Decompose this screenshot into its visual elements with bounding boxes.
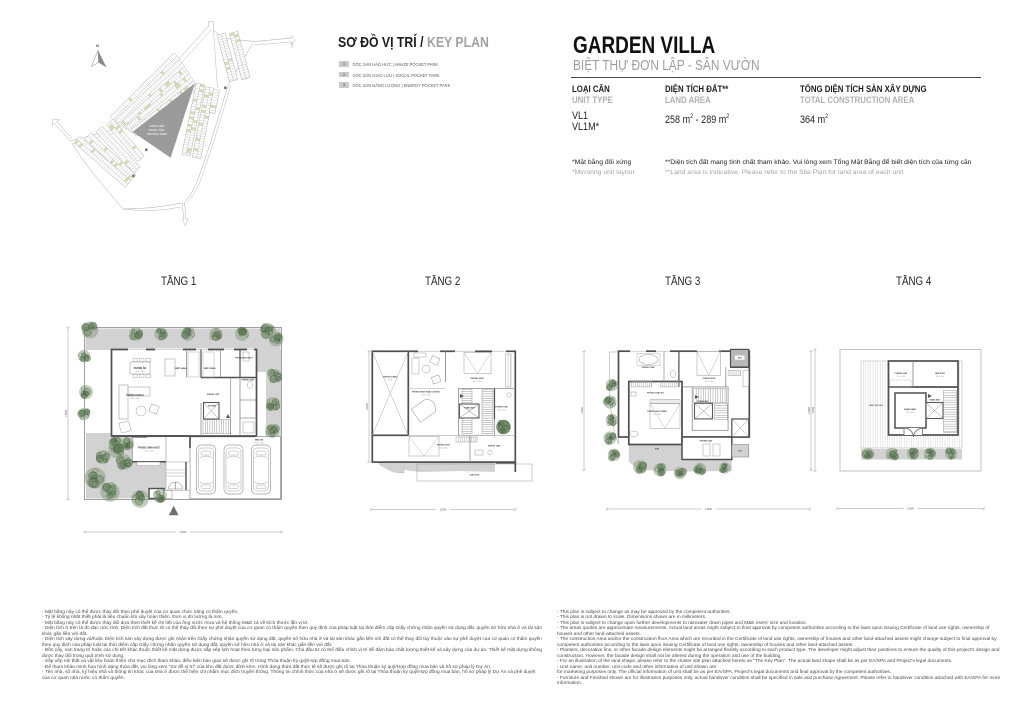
svg-text:N: N (96, 43, 99, 48)
svg-text:5400 x 4000: 5400 x 4000 (144, 451, 153, 453)
svg-text:THANG MÁY: THANG MÁY (929, 399, 941, 402)
svg-text:TRUNG TÂM -: TRUNG TÂM - (148, 128, 166, 132)
svg-text:PHÒNG SINH HOẠT CHUNG: PHÒNG SINH HOẠT CHUNG (412, 391, 440, 394)
svg-text:PHÒNG THAY ĐỒ: PHÒNG THAY ĐỒ (647, 392, 664, 395)
svg-text:PHÒNG ĂN: PHÒNG ĂN (134, 367, 147, 370)
svg-text:PHÒNG GIẶT: PHÒNG GIẶT (700, 440, 713, 443)
svg-text:PHÒNG GIẶT: PHÒNG GIẶT (242, 379, 255, 382)
svg-text:4000 x 3700: 4000 x 3700 (473, 381, 482, 383)
svg-text:12200: 12200 (440, 508, 447, 511)
svg-text:5400 x 6000: 5400 x 6000 (130, 398, 139, 400)
svg-text:PHÒNG NGỦ: PHÒNG NGỦ (437, 444, 450, 447)
svg-text:3400 x 2000: 3400 x 2000 (936, 376, 944, 378)
svg-text:2700 x 2000: 2700 x 2000 (897, 376, 905, 378)
svg-text:5000 x 4000: 5000 x 4000 (653, 414, 661, 416)
svg-text:4000 x 3300: 4000 x 3300 (439, 447, 447, 449)
svg-text:4600 x 4000: 4600 x 4000 (422, 394, 431, 396)
svg-text:PHÒNG NGỦ NHỎ: PHÒNG NGỦ NHỎ (235, 357, 253, 360)
svg-text:14000: 14000 (581, 407, 584, 414)
svg-text:3900 x 4000: 3900 x 4000 (135, 371, 144, 373)
svg-text:PHÒNG GIẶT: PHÒNG GIẶT (895, 372, 908, 375)
svg-text:BẾP LẠNH: BẾP LẠNH (175, 367, 187, 370)
svg-text:NHÀ XE: NHÀ XE (255, 439, 264, 442)
svg-text:17000: 17000 (65, 410, 68, 417)
svg-text:14000: 14000 (808, 407, 811, 414)
svg-text:THANG MÁY: THANG MÁY (464, 407, 476, 410)
svg-text:17500: 17500 (180, 531, 187, 534)
svg-text:THÔNG TẦNG: THÔNG TẦNG (383, 376, 398, 379)
svg-text:CENTRAL PARK: CENTRAL PARK (147, 132, 168, 136)
svg-text:BẾP NÓNG: BẾP NÓNG (204, 367, 216, 370)
svg-text:13000: 13000 (705, 508, 712, 511)
svg-text:SÂN THƯỢNG: SÂN THƯỢNG (869, 404, 883, 407)
svg-text:4000 x 3700: 4000 x 3700 (705, 381, 713, 383)
svg-text:3400 x 3400: 3400 x 3400 (906, 412, 914, 414)
svg-text:VỆ SINH: VỆ SINH (208, 405, 217, 408)
svg-text:KHO: KHO (738, 451, 743, 453)
svg-text:12200: 12200 (366, 403, 369, 410)
svg-text:PHÒNG KHÁCH: PHÒNG KHÁCH (126, 394, 144, 397)
svg-text:12400: 12400 (812, 406, 815, 413)
svg-text:PHÒNG CHỜ: PHÒNG CHỜ (207, 393, 220, 396)
svg-text:8000 x 5500: 8000 x 5500 (255, 442, 264, 444)
svg-text:SÂN PHƠI: SÂN PHƠI (935, 372, 945, 375)
svg-text:2300 x 2000: 2300 x 2000 (497, 409, 505, 411)
svg-text:PHÒNG TẮM: PHÒNG TẮM (488, 445, 501, 448)
svg-text:THANG MÁY: THANG MÁY (697, 400, 709, 403)
svg-text:MÁI ĐÓN: MÁI ĐÓN (470, 474, 480, 477)
svg-text:PHÒNG NGỦ: PHÒNG NGỦ (703, 377, 716, 380)
svg-text:SÂN: SÂN (655, 448, 660, 451)
svg-text:SẢNH TẦNG: SẢNH TẦNG (904, 408, 916, 411)
svg-text:PHÒNG NGỦ CHÍNH: PHÒNG NGỦ CHÍNH (647, 410, 667, 413)
svg-text:PHÒNG TẮM: PHÒNG TẮM (495, 406, 508, 409)
svg-text:PHÒNG TẮM: PHÒNG TẮM (642, 366, 655, 369)
svg-text:PHÒNG SINH HOẠT: PHÒNG SINH HOẠT (138, 447, 160, 450)
svg-text:PHÒNG NGỦ: PHÒNG NGỦ (470, 377, 484, 380)
svg-text:12400: 12400 (907, 508, 914, 511)
